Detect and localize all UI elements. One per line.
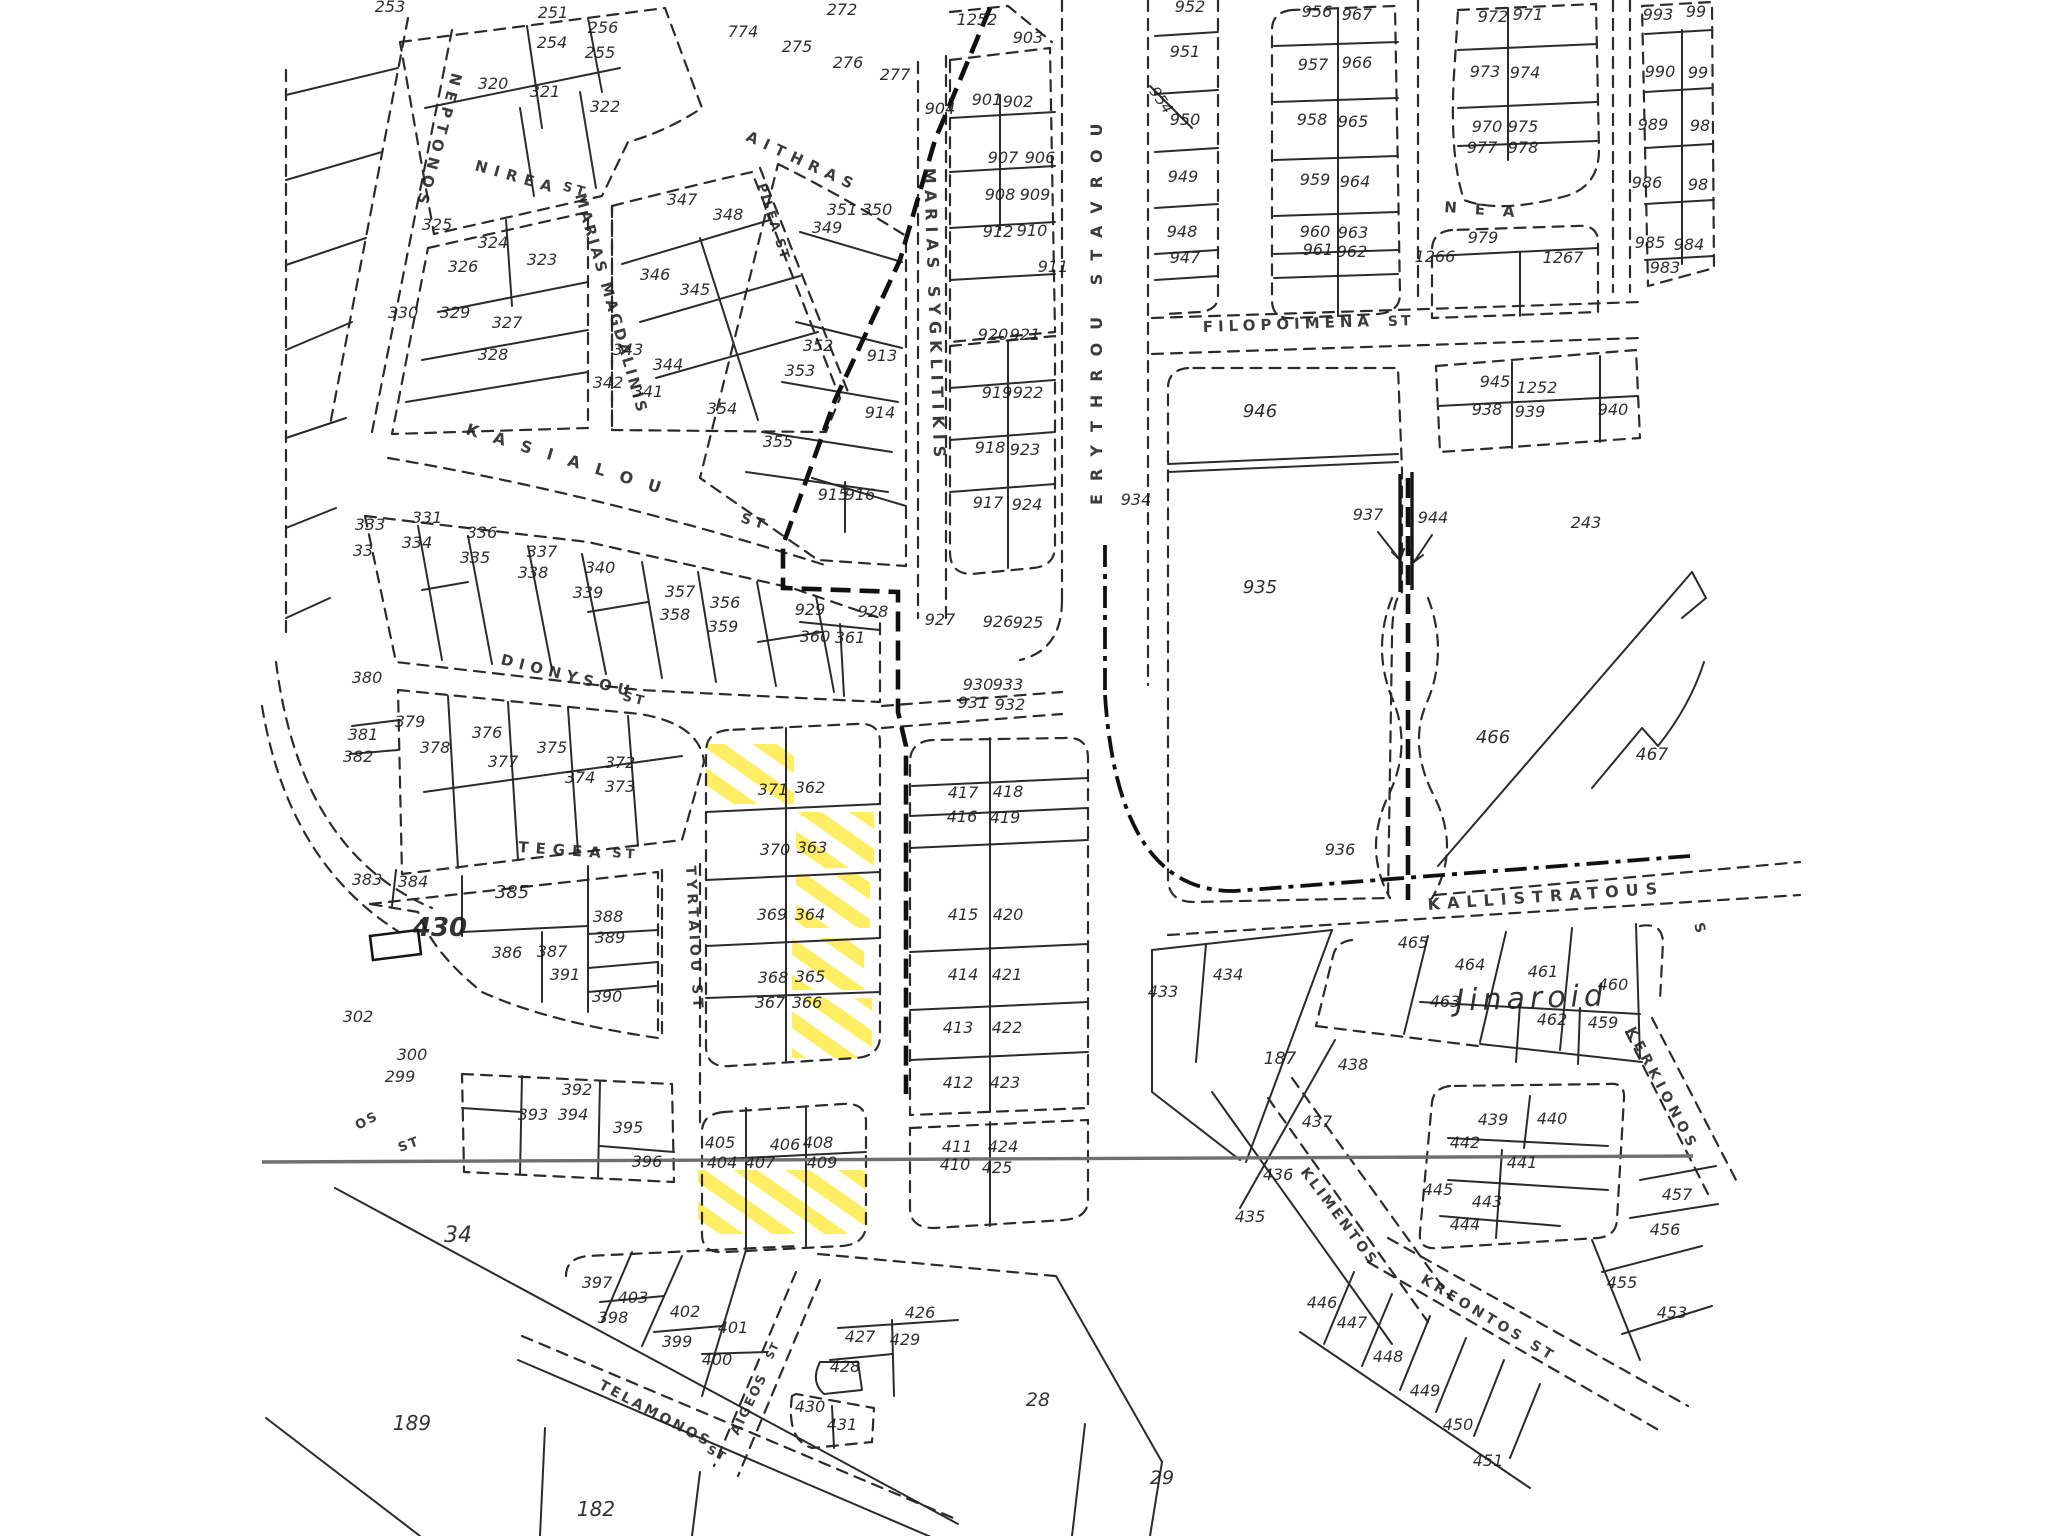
parcel-label-368: 368: [758, 968, 789, 987]
parcel-label-431: 431: [827, 1415, 858, 1434]
parcel-label-33: 33: [353, 541, 373, 560]
parcel-label-933: 933: [993, 675, 1024, 694]
parcel-label-438: 438: [1338, 1055, 1369, 1074]
area-label-34: 34: [444, 1223, 472, 1248]
parcel-label-958: 958: [1297, 110, 1328, 129]
parcel-label-456: 456: [1650, 1220, 1681, 1239]
parcel-label-447: 447: [1337, 1313, 1368, 1332]
parcel-label-455: 455: [1607, 1273, 1638, 1292]
parcel-label-327: 327: [492, 313, 523, 332]
parcel-label-276: 276: [833, 53, 864, 72]
parcel-label-975: 975: [1508, 117, 1539, 136]
parcel-label-951: 951: [1170, 42, 1201, 61]
area-label-430: 430: [412, 913, 467, 943]
parcel-label-466: 466: [1476, 727, 1510, 748]
parcel-label-971: 971: [1513, 5, 1544, 24]
parcel-label-347: 347: [667, 190, 698, 209]
parcel-label-949: 949: [1168, 167, 1199, 186]
parcel-label-909: 909: [1020, 185, 1051, 204]
parcel-label-930: 930: [963, 675, 994, 694]
parcel-label-345: 345: [680, 280, 711, 299]
parcel-label-937: 937: [1353, 505, 1384, 524]
parcel-label-400: 400: [702, 1350, 733, 1369]
parcel-label-918: 918: [975, 438, 1006, 457]
area-label-29: 29: [1150, 1467, 1174, 1489]
parcel-label-464: 464: [1455, 955, 1486, 974]
parcel-label-350: 350: [862, 200, 893, 219]
parcel-label-385: 385: [495, 882, 529, 903]
parcel-label-329: 329: [440, 303, 471, 322]
parcel-label-927: 927: [925, 610, 956, 629]
parcel-label-932: 932: [995, 695, 1026, 714]
parcel-label-251: 251: [538, 3, 569, 22]
parcel-label-396: 396: [632, 1152, 663, 1171]
parcel-label-372: 372: [605, 753, 636, 772]
parcel-label-354: 354: [707, 399, 738, 418]
parcel-label-441: 441: [1507, 1153, 1538, 1172]
parcel-label-1267: 1267: [1543, 248, 1585, 267]
parcel-label-938: 938: [1472, 400, 1503, 419]
parcel-label-928: 928: [858, 602, 889, 621]
parcel-label-960: 960: [1300, 222, 1331, 241]
parcel-label-1252: 1252: [957, 10, 998, 29]
parcel-label-935: 935: [1243, 577, 1277, 598]
parcel-label-940: 940: [1598, 400, 1629, 419]
parcel-label-444: 444: [1450, 1215, 1481, 1234]
parcel-label-254: 254: [537, 33, 568, 52]
parcel-label-923: 923: [1010, 440, 1041, 459]
parcel-label-419: 419: [990, 808, 1021, 827]
parcel-label-392: 392: [562, 1080, 593, 1099]
parcel-label-406: 406: [770, 1135, 801, 1154]
parcel-label-939: 939: [1515, 402, 1546, 421]
parcel-label-436: 436: [1263, 1165, 1294, 1184]
parcel-label-459: 459: [1588, 1013, 1619, 1032]
parcel-label-253: 253: [375, 0, 406, 16]
parcel-label-365: 365: [795, 967, 826, 986]
parcel-label-446: 446: [1307, 1293, 1338, 1312]
parcel-label-978: 978: [1508, 138, 1539, 157]
parcel-label-373: 373: [605, 777, 636, 796]
parcel-label-328: 328: [478, 345, 509, 364]
parcel-label-375: 375: [537, 738, 568, 757]
parcel-label-972: 972: [1478, 7, 1509, 26]
parcel-label-358: 358: [660, 605, 691, 624]
parcel-label-440: 440: [1537, 1109, 1568, 1128]
parcel-label-450: 450: [1443, 1415, 1474, 1434]
parcel-label-426: 426: [905, 1303, 936, 1322]
parcel-label-924: 924: [1012, 495, 1043, 514]
parcel-label-977: 977: [1467, 138, 1498, 157]
parcel-label-442: 442: [1450, 1133, 1481, 1152]
parcel-label-429: 429: [890, 1330, 921, 1349]
parcel-label-931: 931: [958, 693, 989, 712]
parcel-label-99: 99: [1688, 63, 1708, 82]
parcel-label-320: 320: [478, 74, 509, 93]
street-label-st: ST: [1388, 313, 1414, 330]
parcel-label-351: 351: [827, 200, 858, 219]
parcel-label-467: 467: [1636, 745, 1669, 765]
parcel-label-979: 979: [1468, 228, 1499, 247]
parcel-label-393: 393: [518, 1105, 549, 1124]
parcel-label-346: 346: [640, 265, 671, 284]
parcel-label-465: 465: [1398, 933, 1429, 952]
parcel-label-974: 974: [1510, 63, 1541, 82]
parcel-label-449: 449: [1410, 1381, 1441, 1400]
parcel-label-993: 993: [1643, 5, 1674, 24]
parcel-label-364: 364: [795, 905, 826, 924]
parcel-label-461: 461: [1528, 962, 1559, 981]
parcel-label-98: 98: [1690, 116, 1710, 135]
parcel-label-370: 370: [760, 840, 791, 859]
parcel-label-412: 412: [943, 1073, 974, 1092]
parcel-label-381: 381: [348, 725, 379, 744]
parcel-label-964: 964: [1340, 172, 1371, 191]
parcel-label-410: 410: [940, 1155, 971, 1174]
parcel-label-386: 386: [492, 943, 523, 962]
parcel-label-416: 416: [947, 807, 978, 826]
parcel-label-990: 990: [1645, 62, 1676, 81]
parcel-label-774: 774: [728, 22, 759, 41]
parcel-label-341: 341: [633, 382, 664, 401]
parcel-label-929: 929: [795, 600, 826, 619]
parcel-label-414: 414: [948, 965, 979, 984]
parcel-label-377: 377: [488, 752, 519, 771]
parcel-label-963: 963: [1338, 223, 1369, 242]
parcel-label-1252: 1252: [1517, 378, 1558, 397]
parcel-label-437: 437: [1302, 1112, 1333, 1131]
parcel-label-984: 984: [1674, 235, 1705, 254]
parcel-label-956: 956: [1302, 2, 1333, 21]
parcel-label-906: 906: [1025, 148, 1056, 167]
parcel-label-428: 428: [830, 1357, 861, 1376]
parcel-label-422: 422: [992, 1018, 1023, 1037]
parcel-label-330: 330: [388, 303, 419, 322]
parcel-label-366: 366: [792, 993, 823, 1012]
street-label-st: ST: [612, 846, 639, 863]
parcel-label-448: 448: [1373, 1347, 1404, 1366]
parcel-label-421: 421: [992, 965, 1023, 984]
parcel-label-420: 420: [993, 905, 1024, 924]
parcel-label-911: 911: [1038, 257, 1069, 276]
parcel-label-989: 989: [1638, 115, 1669, 134]
parcel-label-243: 243: [1571, 513, 1602, 532]
parcel-label-425: 425: [982, 1158, 1013, 1177]
parcel-label-952: 952: [1175, 0, 1206, 16]
parcel-label-983: 983: [1650, 258, 1681, 277]
parcel-label-394: 394: [558, 1105, 589, 1124]
parcel-label-404: 404: [707, 1153, 738, 1172]
parcel-label-413: 413: [943, 1018, 974, 1037]
parcel-label-915: 915: [818, 485, 849, 504]
parcel-label-1266: 1266: [1415, 247, 1456, 266]
parcel-label-457: 457: [1662, 1185, 1693, 1204]
parcel-label-966: 966: [1342, 53, 1373, 72]
parcel-label-910: 910: [1017, 221, 1048, 240]
parcel-label-272: 272: [827, 0, 858, 19]
parcel-label-340: 340: [585, 558, 616, 577]
parcel-label-324: 324: [478, 233, 509, 252]
parcel-label-947: 947: [1170, 248, 1201, 267]
parcel-label-374: 374: [565, 768, 596, 787]
parcel-label-361: 361: [835, 628, 866, 647]
parcel-label-333: 333: [355, 515, 386, 534]
parcel-label-362: 362: [795, 778, 826, 797]
parcel-label-395: 395: [613, 1118, 644, 1137]
parcel-label-380: 380: [352, 668, 383, 687]
area-label-jinaroid: Jinaroid: [1450, 978, 1609, 1018]
parcel-label-369: 369: [757, 905, 788, 924]
area-label-189: 189: [393, 1411, 431, 1435]
parcel-label-397: 397: [582, 1273, 613, 1292]
parcel-label-936: 936: [1325, 840, 1356, 859]
parcel-label-912: 912: [983, 222, 1014, 241]
parcel-label-921: 921: [1010, 325, 1041, 344]
parcel-label-322: 322: [590, 97, 621, 116]
parcel-label-934: 934: [1121, 490, 1152, 509]
parcel-label-371: 371: [758, 780, 789, 799]
parcel-label-359: 359: [708, 617, 739, 636]
parcel-label-343: 343: [613, 340, 644, 359]
parcel-label-415: 415: [948, 905, 979, 924]
parcel-label-453: 453: [1657, 1303, 1688, 1322]
parcel-label-388: 388: [593, 907, 624, 926]
parcel-label-326: 326: [448, 257, 479, 276]
parcel-label-383: 383: [352, 870, 383, 889]
highlight-404-407-409-south: [698, 1170, 866, 1234]
parcel-label-417: 417: [948, 783, 979, 802]
parcel-label-367: 367: [755, 993, 786, 1012]
parcel-label-424: 424: [988, 1137, 1019, 1156]
parcel-label-445: 445: [1423, 1180, 1454, 1199]
parcel-label-973: 973: [1470, 62, 1501, 81]
parcel-label-336: 336: [467, 523, 498, 542]
parcel-label-334: 334: [402, 533, 433, 552]
parcel-label-967: 967: [1342, 5, 1373, 24]
parcel-label-338: 338: [518, 563, 549, 582]
street-label-erythrou-stavrou: ERYTHROU STAVROU: [1087, 110, 1106, 505]
parcel-label-187: 187: [1264, 1049, 1297, 1069]
parcel-label-378: 378: [420, 738, 451, 757]
parcel-label-945: 945: [1480, 372, 1511, 391]
parcel-label-325: 325: [422, 215, 453, 234]
parcel-label-348: 348: [713, 205, 744, 224]
parcel-label-985: 985: [1635, 233, 1666, 252]
parcel-label-903: 903: [1013, 28, 1044, 47]
parcel-label-401: 401: [718, 1318, 749, 1337]
parcel-label-384: 384: [398, 872, 429, 891]
parcel-label-98: 98: [1688, 175, 1708, 194]
parcel-label-965: 965: [1338, 112, 1369, 131]
parcel-label-363: 363: [797, 838, 828, 857]
parcel-label-427: 427: [845, 1327, 876, 1346]
parcel-label-959: 959: [1300, 170, 1331, 189]
parcel-label-323: 323: [527, 250, 558, 269]
parcel-label-405: 405: [705, 1133, 736, 1152]
parcel-label-919: 919: [982, 383, 1013, 402]
parcel-label-962: 962: [1337, 242, 1368, 261]
parcel-label-391: 391: [550, 965, 581, 984]
parcel-label-409: 409: [807, 1153, 838, 1172]
parcel-label-946: 946: [1243, 401, 1277, 422]
parcel-label-275: 275: [782, 37, 813, 56]
parcel-label-379: 379: [395, 712, 426, 731]
parcel-label-907: 907: [988, 148, 1019, 167]
parcel-label-299: 299: [385, 1067, 416, 1086]
parcel-label-407: 407: [745, 1153, 776, 1172]
parcel-label-913: 913: [867, 346, 898, 365]
parcel-label-925: 925: [1013, 613, 1044, 632]
parcel-label-256: 256: [588, 18, 619, 37]
parcel-label-418: 418: [993, 782, 1024, 801]
parcel-label-337: 337: [527, 542, 558, 561]
parcel-label-957: 957: [1298, 55, 1329, 74]
parcel-label-902: 902: [1003, 92, 1034, 111]
parcel-label-926: 926: [983, 612, 1014, 631]
parcel-label-349: 349: [812, 218, 843, 237]
parcel-label-353: 353: [785, 361, 816, 380]
area-label-28: 28: [1026, 1389, 1050, 1411]
parcel-label-344: 344: [653, 355, 684, 374]
area-label-182: 182: [577, 1497, 615, 1521]
parcel-label-389: 389: [595, 928, 626, 947]
parcel-label-914: 914: [865, 403, 896, 422]
parcel-label-390: 390: [592, 987, 623, 1006]
parcel-label-908: 908: [985, 185, 1016, 204]
parcel-label-430: 430: [795, 1397, 826, 1416]
parcel-label-961: 961: [1303, 240, 1334, 259]
parcel-label-255: 255: [585, 43, 616, 62]
parcel-label-904: 904: [925, 99, 956, 118]
parcel-label-901: 901: [972, 90, 1003, 109]
parcel-label-917: 917: [973, 493, 1004, 512]
parcel-label-970: 970: [1472, 117, 1503, 136]
parcel-label-355: 355: [763, 432, 794, 451]
parcel-label-302: 302: [343, 1007, 374, 1026]
parcel-label-342: 342: [593, 373, 624, 392]
parcel-label-360: 360: [800, 627, 831, 646]
parcel-label-382: 382: [343, 747, 374, 766]
parcel-label-948: 948: [1167, 222, 1198, 241]
parcel-label-339: 339: [573, 583, 604, 602]
parcel-label-916: 916: [845, 485, 876, 504]
parcel-label-356: 356: [710, 593, 741, 612]
parcel-label-321: 321: [530, 82, 561, 101]
parcel-label-376: 376: [472, 723, 503, 742]
parcel-label-950: 950: [1170, 110, 1201, 129]
parcel-label-433: 433: [1148, 982, 1179, 1001]
parcel-label-331: 331: [412, 508, 443, 527]
parcel-label-435: 435: [1235, 1207, 1266, 1226]
parcel-label-335: 335: [460, 548, 491, 567]
parcel-label-434: 434: [1213, 965, 1244, 984]
cadastral-map-page: NEPTONOSNIREASTAITHRASPILEA STMARIAS MAG…: [0, 0, 2048, 1536]
parcel-label-277: 277: [880, 65, 911, 84]
parcel-label-403: 403: [618, 1288, 649, 1307]
parcel-label-402: 402: [670, 1302, 701, 1321]
parcel-label-398: 398: [598, 1308, 629, 1327]
parcel-label-357: 357: [665, 582, 696, 601]
parcel-label-443: 443: [1472, 1192, 1503, 1211]
cadastral-map-svg: NEPTONOSNIREASTAITHRASPILEA STMARIAS MAG…: [0, 0, 2048, 1536]
parcel-label-300: 300: [397, 1045, 428, 1064]
parcel-label-387: 387: [537, 942, 568, 961]
parcel-label-920: 920: [978, 325, 1009, 344]
parcel-label-399: 399: [662, 1332, 693, 1351]
parcel-label-408: 408: [803, 1133, 834, 1152]
parcel-label-944: 944: [1418, 508, 1449, 527]
parcel-label-986: 986: [1632, 173, 1663, 192]
parcel-label-922: 922: [1013, 383, 1044, 402]
parcel-label-352: 352: [803, 336, 834, 355]
parcel-label-99: 99: [1686, 2, 1706, 21]
parcel-label-439: 439: [1478, 1110, 1509, 1129]
parcel-label-451: 451: [1473, 1451, 1504, 1470]
parcel-label-423: 423: [990, 1073, 1021, 1092]
parcel-label-411: 411: [942, 1137, 973, 1156]
